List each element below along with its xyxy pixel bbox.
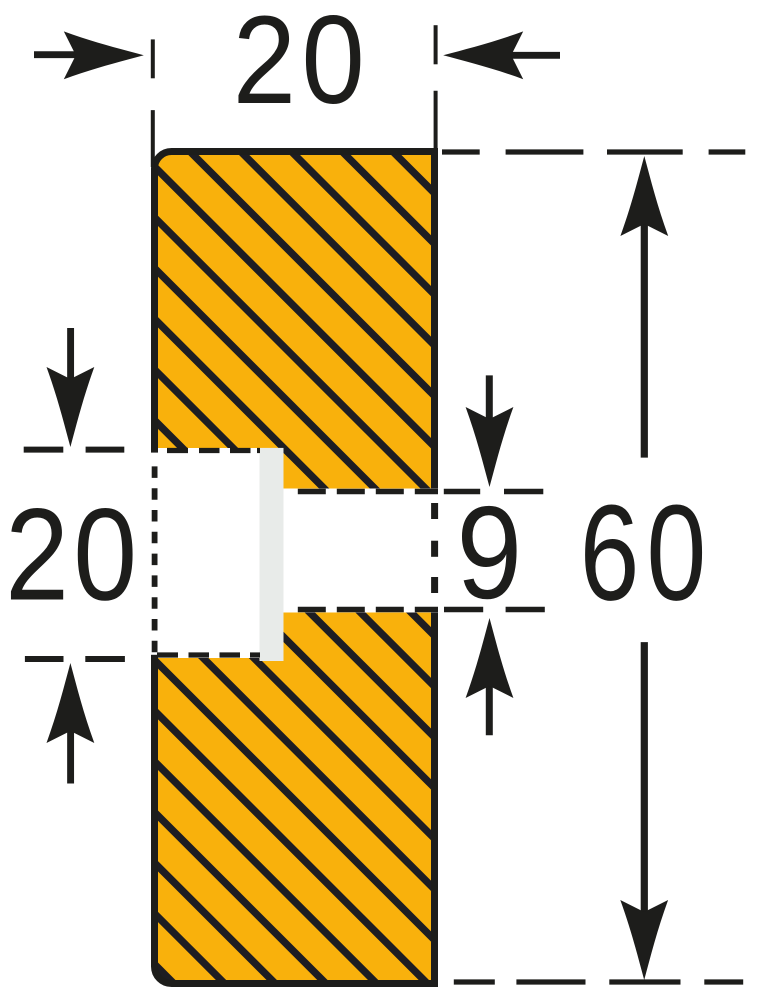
svg-text:60: 60 [580, 476, 714, 628]
svg-text:20: 20 [233, 0, 370, 130]
svg-text:9: 9 [456, 479, 522, 627]
svg-text:20: 20 [5, 482, 141, 628]
